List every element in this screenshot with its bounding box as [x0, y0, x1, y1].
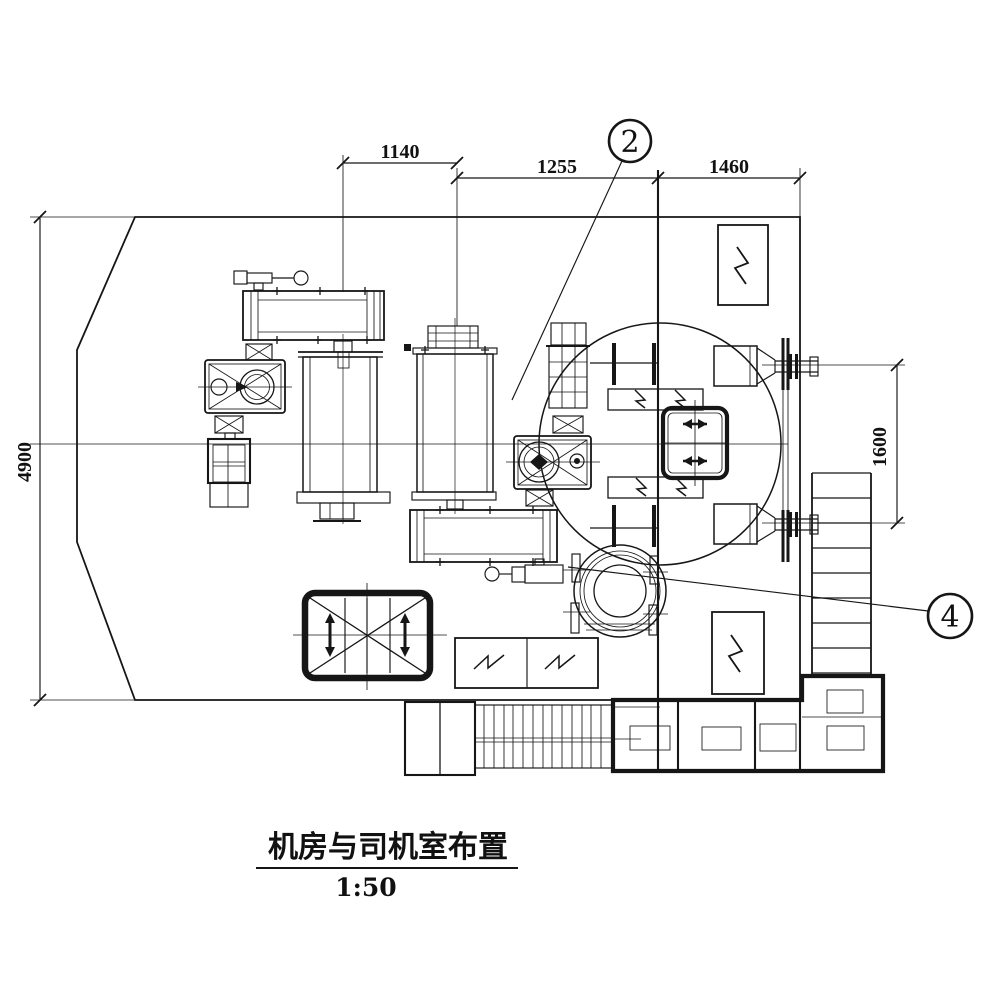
title-block: 机房与司机室布置 1:50 — [256, 830, 518, 902]
dim-1140: 1140 — [381, 141, 420, 163]
callout-2: 2 — [512, 120, 651, 400]
resistor-box-right — [712, 612, 764, 694]
ballast-block — [702, 727, 741, 750]
slew-drive-unit — [563, 545, 668, 637]
ballast-block — [760, 724, 796, 751]
coupling-1 — [246, 344, 272, 360]
dimension-left: 4900 — [14, 211, 46, 706]
plan-drawing: 1140 1255 1460 4900 1600 2 4 机房与司机室布置 1:… — [0, 0, 1000, 1000]
ballast-block — [827, 726, 864, 750]
cable-reel-bottom — [714, 504, 818, 544]
walkway-grating — [405, 702, 612, 775]
rope-drum-1 — [297, 334, 411, 524]
dim-4900: 4900 — [14, 442, 36, 482]
drawing-title: 机房与司机室布置 — [268, 830, 508, 865]
counterweight-bay — [613, 676, 883, 771]
dim-1600: 1600 — [869, 427, 891, 467]
callout-4: 4 — [568, 567, 972, 638]
floor-hatch — [293, 583, 447, 690]
resistor-box-top-right — [718, 225, 768, 305]
dim-1255: 1255 — [537, 156, 577, 178]
cad-sheet: 1140 1255 1460 4900 1600 2 4 机房与司机室布置 1:… — [0, 0, 1000, 1000]
callout-2-label: 2 — [620, 125, 639, 160]
drawing-scale: 1:50 — [335, 873, 396, 902]
brake-unit-2 — [546, 346, 590, 408]
cable-reel-top — [714, 346, 818, 386]
hoist-gearbox-1 — [198, 360, 292, 413]
operator-seat — [663, 400, 727, 486]
rope-drum-2 — [412, 318, 497, 514]
resistor-frames — [608, 389, 703, 498]
brake-release-lever-1 — [234, 271, 308, 290]
machine-room-outline — [30, 217, 800, 700]
coupling-2 — [215, 416, 243, 439]
callout-4-label: 4 — [940, 600, 959, 635]
ballast-block — [827, 690, 863, 713]
hoist-unit-1 — [198, 271, 384, 507]
coupling-3 — [553, 416, 583, 433]
hoist-motor-1 — [243, 287, 384, 344]
brake-unit-1 — [208, 439, 250, 507]
access-ladder — [812, 473, 871, 676]
ballast-block — [630, 726, 670, 750]
dim-1460: 1460 — [709, 156, 749, 178]
hoist-motor-2 — [410, 506, 557, 566]
resistor-box-center — [455, 638, 598, 688]
dimension-top: 1140 1255 1460 — [337, 141, 806, 326]
